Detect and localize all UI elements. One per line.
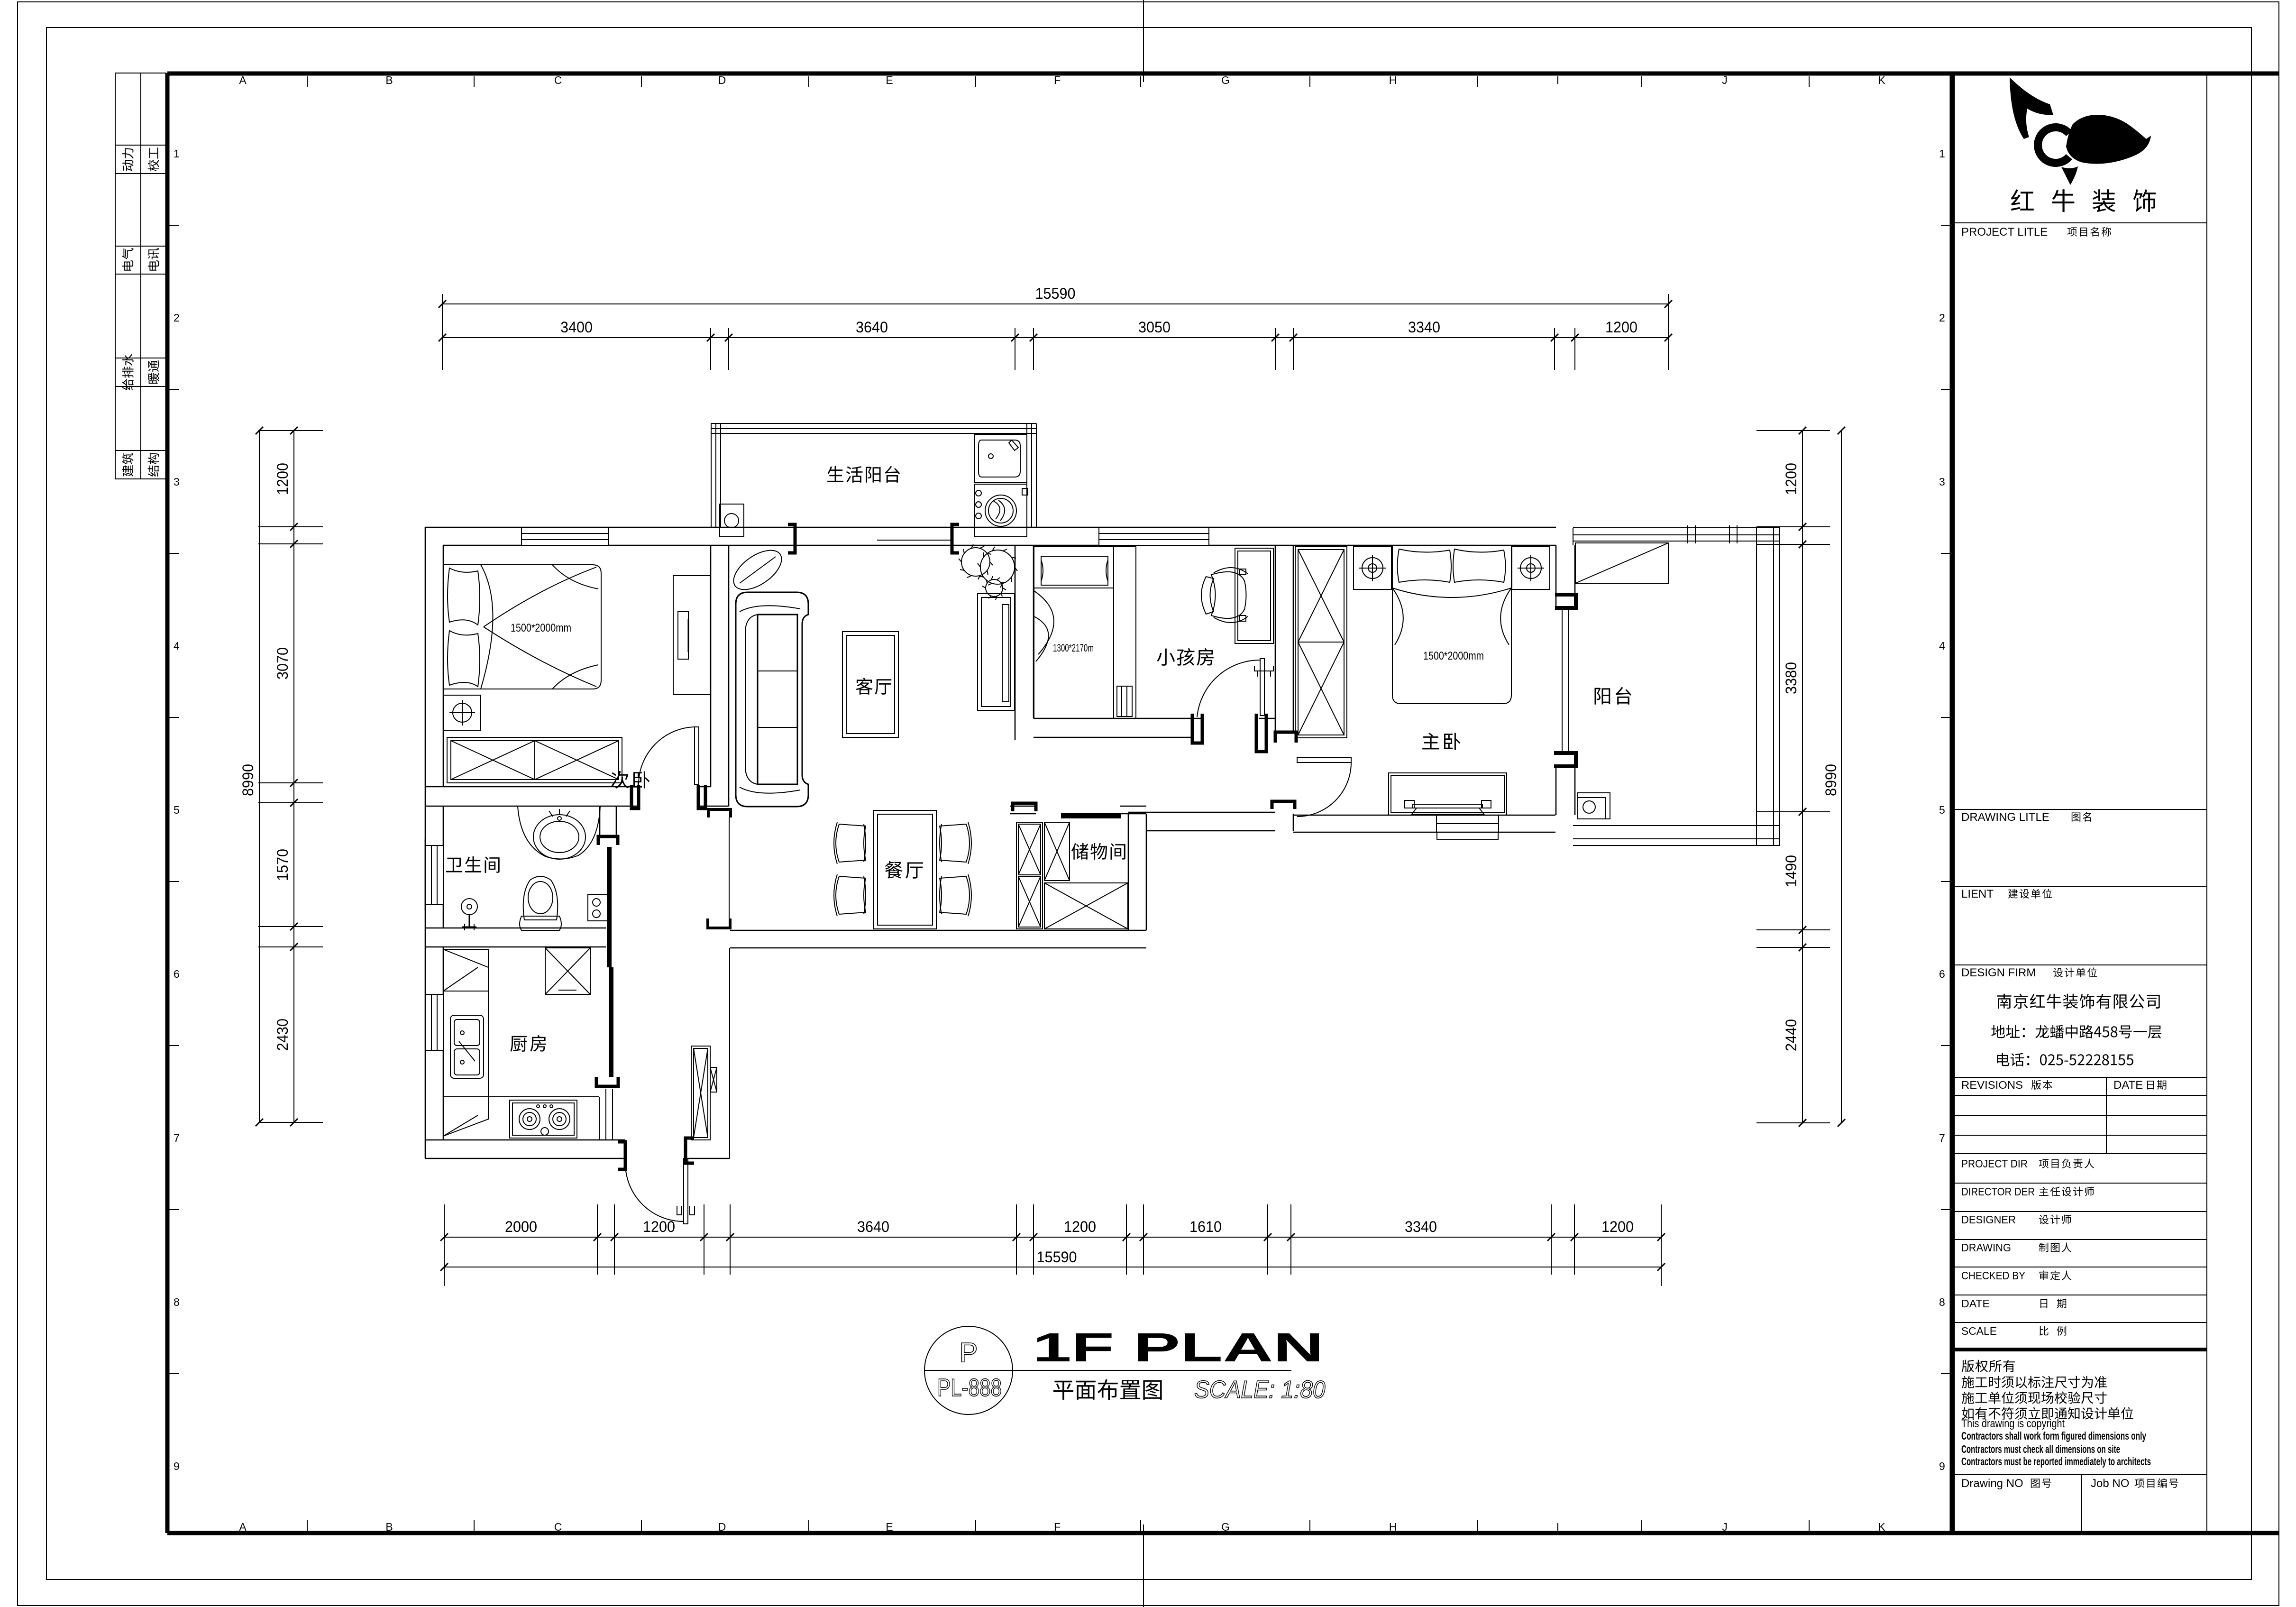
svg-text:Contractors shall work form fi: Contractors shall work form figured dime… [1961, 1430, 2146, 1442]
svg-text:Drawing NO: Drawing NO [1961, 1477, 2023, 1490]
svg-text:3340: 3340 [1405, 1218, 1437, 1235]
svg-text:1200: 1200 [1605, 319, 1637, 336]
svg-text:DATE: DATE [2113, 1079, 2143, 1092]
svg-text:Contractors must be reported i: Contractors must be reported immediately… [1961, 1455, 2151, 1468]
svg-text:9: 9 [174, 1460, 180, 1472]
svg-text:This drawing is copyright: This drawing is copyright [1961, 1417, 2065, 1430]
svg-text:F: F [1054, 74, 1061, 86]
svg-text:6: 6 [174, 968, 180, 980]
svg-text:3340: 3340 [1408, 319, 1440, 336]
svg-text:1: 1 [1939, 147, 1945, 160]
svg-text:1610: 1610 [1189, 1218, 1222, 1235]
svg-text:SCALE: SCALE [1961, 1325, 1997, 1337]
svg-text:2000: 2000 [505, 1218, 537, 1235]
svg-text:1490: 1490 [1783, 855, 1800, 887]
svg-text:1570: 1570 [274, 849, 291, 881]
svg-text:PROJECT DIR: PROJECT DIR [1961, 1157, 2028, 1170]
svg-text:8990: 8990 [239, 764, 256, 796]
svg-text:4: 4 [1939, 640, 1945, 652]
svg-text:PROJECT LITLE: PROJECT LITLE [1961, 226, 2048, 239]
svg-text:A: A [239, 1521, 247, 1533]
svg-text:E: E [886, 74, 893, 86]
svg-text:3400: 3400 [560, 319, 593, 336]
svg-text:CHECKED BY: CHECKED BY [1961, 1269, 2025, 1282]
svg-text:3640: 3640 [856, 319, 888, 336]
svg-text:2: 2 [174, 312, 180, 324]
svg-text:8: 8 [1939, 1296, 1945, 1308]
svg-text:K: K [1878, 74, 1885, 86]
svg-text:3050: 3050 [1138, 319, 1171, 336]
svg-text:E: E [886, 1521, 893, 1533]
svg-text:K: K [1878, 1521, 1885, 1533]
svg-text:8: 8 [174, 1296, 180, 1308]
svg-text:3: 3 [1939, 476, 1945, 488]
svg-text:4: 4 [174, 640, 180, 652]
svg-text:15590: 15590 [1035, 285, 1076, 302]
svg-text:DRAWING LITLE: DRAWING LITLE [1961, 811, 2049, 824]
svg-text:1200: 1200 [274, 463, 291, 495]
svg-text:Contractors must check all dim: Contractors must check all dimensions on… [1961, 1443, 2120, 1455]
svg-text:3380: 3380 [1783, 662, 1800, 694]
svg-text:1500*2000mm: 1500*2000mm [1423, 650, 1484, 662]
svg-text:15590: 15590 [1037, 1249, 1077, 1266]
svg-text:1500*2000mm: 1500*2000mm [511, 622, 571, 634]
svg-text:DATE: DATE [1961, 1297, 1990, 1310]
svg-text:P: P [960, 1337, 978, 1368]
svg-text:3: 3 [174, 476, 180, 488]
svg-text:SCALE: 1:80: SCALE: 1:80 [1194, 1376, 1326, 1403]
svg-text:H: H [1389, 1521, 1397, 1533]
svg-text:DESIGN FIRM: DESIGN FIRM [1961, 966, 2036, 979]
svg-text:C: C [554, 74, 562, 86]
svg-text:G: G [1221, 1521, 1230, 1533]
svg-text:H: H [1389, 74, 1397, 86]
svg-text:G: G [1221, 74, 1230, 86]
svg-text:3070: 3070 [274, 647, 291, 680]
svg-text:6: 6 [1939, 968, 1945, 980]
svg-text:2440: 2440 [1783, 1019, 1800, 1051]
svg-text:J: J [1722, 1521, 1728, 1533]
svg-text:B: B [385, 74, 393, 86]
svg-text:5: 5 [1939, 804, 1945, 816]
svg-text:3640: 3640 [857, 1218, 889, 1235]
svg-text:PL-888: PL-888 [937, 1374, 1002, 1402]
svg-text:LIENT: LIENT [1961, 888, 1994, 900]
svg-text:2430: 2430 [274, 1019, 291, 1051]
svg-text:DESIGNER: DESIGNER [1961, 1213, 2016, 1226]
svg-text:DRAWING: DRAWING [1961, 1241, 2011, 1254]
svg-text:I: I [1556, 1521, 1559, 1533]
svg-text:D: D [718, 1521, 726, 1533]
svg-text:1200: 1200 [643, 1218, 675, 1235]
svg-text:DIRECTOR DER: DIRECTOR DER [1961, 1185, 2035, 1198]
svg-text:F: F [1054, 1521, 1061, 1533]
svg-text:1: 1 [174, 147, 180, 160]
svg-text:9: 9 [1939, 1460, 1945, 1472]
svg-text:7: 7 [1939, 1132, 1945, 1144]
svg-text:1200: 1200 [1783, 463, 1800, 495]
svg-text:A: A [239, 74, 247, 86]
svg-text:Job NO: Job NO [2091, 1477, 2129, 1490]
svg-text:2: 2 [1939, 312, 1945, 324]
svg-text:7: 7 [174, 1132, 180, 1144]
svg-text:B: B [385, 1521, 393, 1533]
svg-text:1200: 1200 [1064, 1218, 1096, 1235]
svg-text:5: 5 [174, 804, 180, 816]
svg-text:J: J [1722, 74, 1728, 86]
svg-text:D: D [718, 74, 726, 86]
svg-text:1F PLAN: 1F PLAN [1033, 1325, 1324, 1370]
svg-text:8990: 8990 [1822, 764, 1839, 796]
svg-text:REVISIONS: REVISIONS [1961, 1079, 2023, 1091]
svg-text:C: C [554, 1521, 562, 1533]
svg-text:1200: 1200 [1601, 1218, 1634, 1235]
svg-text:1300*2170m: 1300*2170m [1053, 642, 1094, 654]
svg-text:I: I [1556, 74, 1559, 86]
